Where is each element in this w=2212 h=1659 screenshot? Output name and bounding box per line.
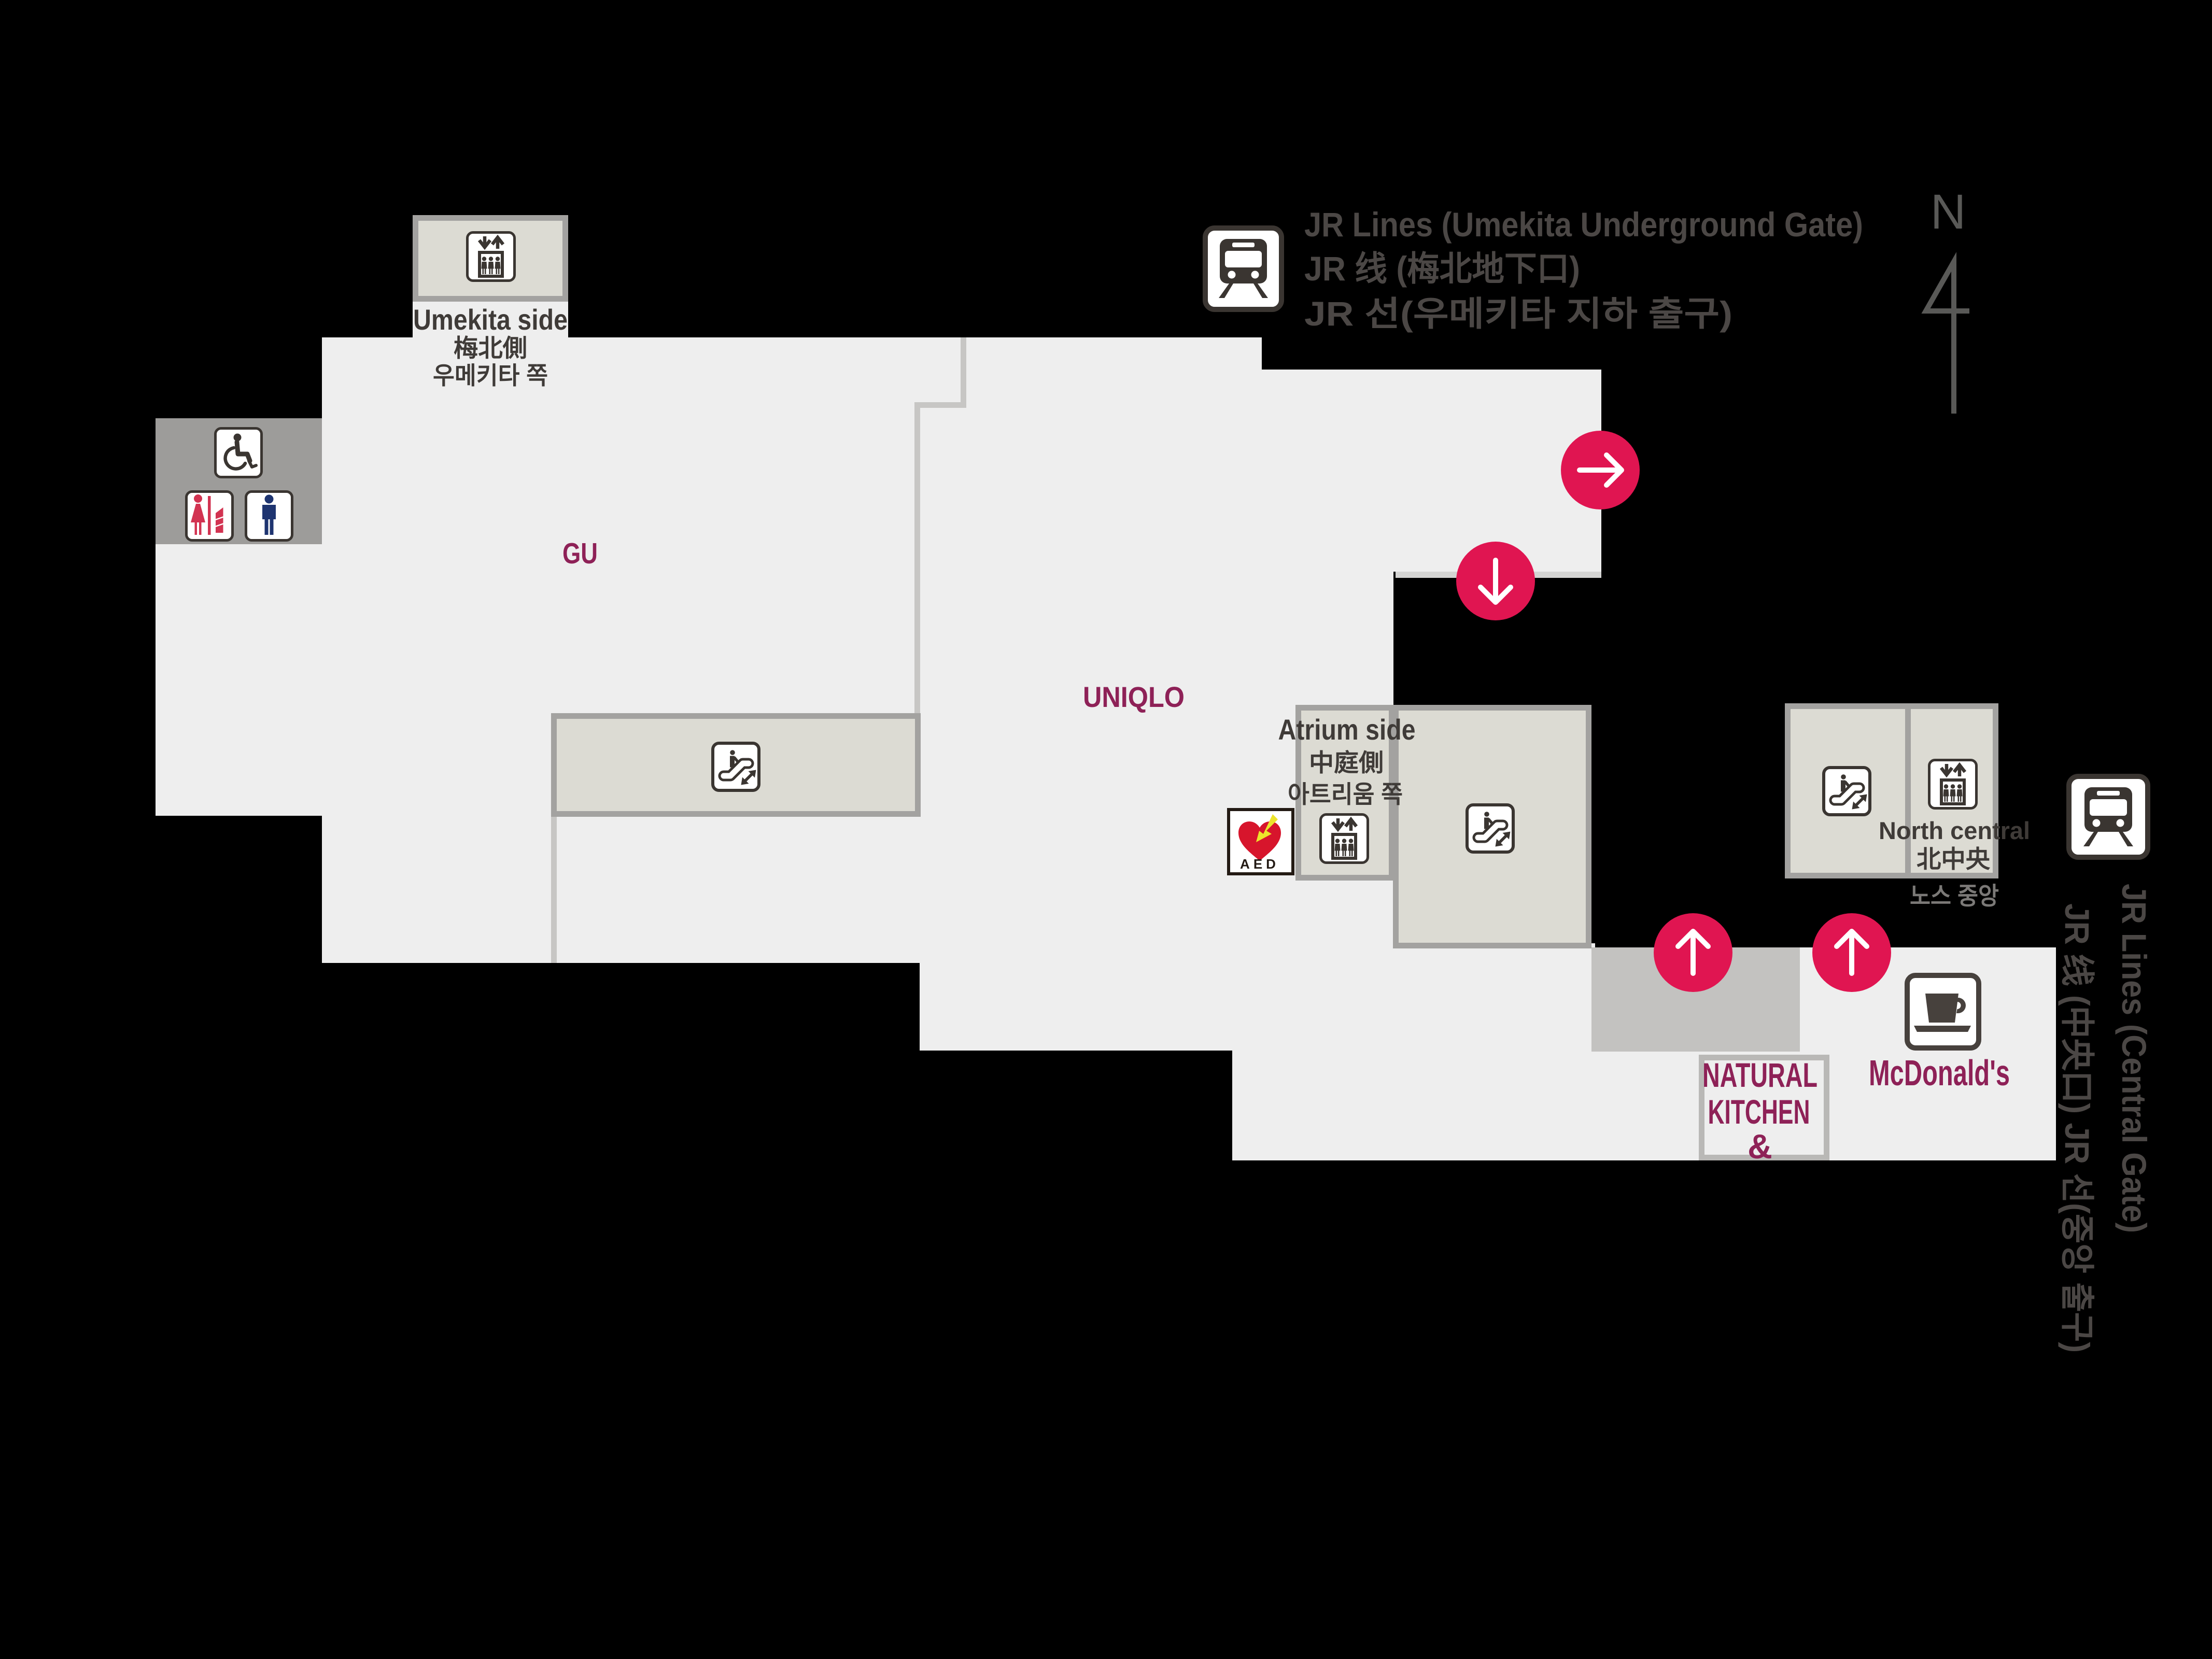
svg-text:GU: GU bbox=[562, 537, 598, 570]
svg-text:NATURAL: NATURAL bbox=[1702, 1056, 1817, 1094]
svg-text:梅北側: 梅北側 bbox=[454, 334, 527, 362]
svg-text:노스 중앙: 노스 중앙 bbox=[1910, 882, 1999, 910]
svg-text:AED: AED bbox=[1240, 856, 1279, 872]
svg-text:Umekita side: Umekita side bbox=[413, 303, 568, 336]
svg-text:JR Lines (Umekita Underground: JR Lines (Umekita Underground Gate) bbox=[1304, 205, 1863, 244]
svg-text:&: & bbox=[1748, 1127, 1772, 1166]
svg-text:UNIQLO: UNIQLO bbox=[1083, 680, 1185, 713]
svg-text:JR 선(우메키타 지하 출구): JR 선(우메키타 지하 출구) bbox=[1304, 294, 1732, 333]
svg-text:中庭側: 中庭側 bbox=[1309, 749, 1384, 776]
svg-text:McDonald's: McDonald's bbox=[1869, 1053, 2010, 1093]
svg-text:우메키타 쪽: 우메키타 쪽 bbox=[433, 362, 548, 389]
svg-text:아트리움 쪽: 아트리움 쪽 bbox=[1288, 781, 1403, 808]
svg-text:JR Lines (Central Gate): JR Lines (Central Gate) bbox=[2115, 884, 2153, 1233]
svg-text:JR 线 (梅北地下口): JR 线 (梅北地下口) bbox=[1304, 249, 1580, 288]
svg-text:N: N bbox=[1931, 185, 1966, 239]
svg-text:Atrium side: Atrium side bbox=[1278, 713, 1416, 746]
svg-text:KITCHEN: KITCHEN bbox=[1708, 1093, 1810, 1131]
svg-text:North central: North central bbox=[1879, 817, 2030, 844]
svg-text:JR 线 (中央口) JR 선(중앙 출구): JR 线 (中央口) JR 선(중앙 출구) bbox=[2058, 903, 2096, 1353]
svg-text:北中央: 北中央 bbox=[1917, 845, 1991, 873]
